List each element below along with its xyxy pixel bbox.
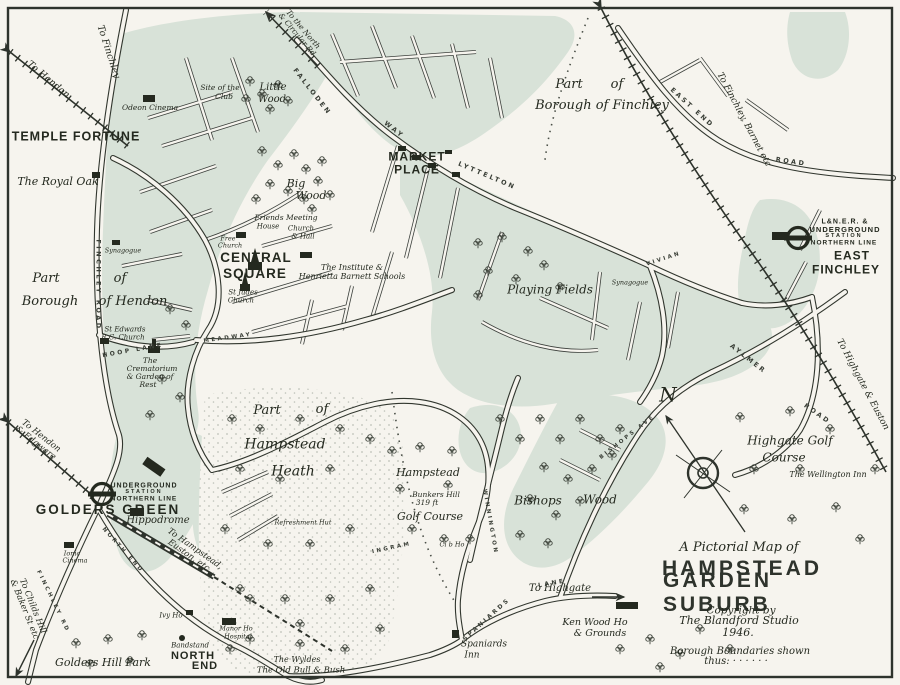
label-hendon-borough: Borough: [22, 295, 79, 309]
title-legend-2: thus: · · · · · ·: [704, 657, 768, 668]
road-finchley-road: FINCHLEY ROAD: [95, 239, 102, 330]
label-bishops-wood-2: Wood: [583, 494, 617, 507]
label-highgate-golf-1: Highgate Golf: [747, 435, 832, 448]
label-heath-part: Part: [253, 404, 280, 418]
label-little-wood-1: Little: [260, 83, 287, 94]
label-ef-name-1: EAST: [834, 250, 870, 263]
label-big-wood-2: Wood: [296, 190, 327, 202]
label-finchley-of: of: [611, 78, 624, 92]
label-odeon-cinema: Odeon Cinema: [122, 104, 178, 112]
title-copyright-2: The Blandford Studio: [679, 615, 798, 627]
label-hippodrome: Hippodrome: [126, 516, 189, 527]
label-bishops-wood-1: Bishops: [514, 495, 562, 508]
label-little-wood-2: Wood: [258, 95, 286, 106]
label-heath-hampstead: Hampstead: [244, 438, 325, 453]
label-spaniards-2: Inn: [464, 651, 479, 660]
label-heath-of: of: [316, 403, 329, 417]
title-copyright-3: 1946.: [722, 627, 754, 639]
label-market-place-2: PLACE: [394, 164, 440, 177]
label-central-square-2: SQUARE: [223, 267, 287, 281]
label-wyldes: The Wyldes: [274, 656, 321, 664]
label-club-house: Cl b Ho: [440, 542, 465, 549]
label-central-square-1: CENTRAL: [220, 251, 292, 265]
label-old-bull-bush: The Old Bull & Bush: [257, 667, 345, 676]
label-friends-meeting-2: House: [257, 223, 280, 230]
compass-n-label: N: [659, 385, 677, 406]
label-hendon-part: Part: [32, 272, 59, 286]
label-hendon-of: of: [114, 272, 127, 286]
label-hampstead-golf-4: Golf Course: [397, 511, 463, 523]
label-big-wood-1: Big: [287, 178, 306, 190]
label-ef-name-2: FINCHLEY: [812, 264, 880, 277]
label-institute-2: Henrietta Barnett Schools: [299, 273, 405, 281]
label-synagogue-east: Synagogue: [612, 280, 648, 287]
label-st-judes-2: Church: [228, 297, 254, 304]
pictorial-map-hampstead-garden-suburb: TEMPLE FORTUNE MARKET PLACE CENTRAL SQUA…: [0, 0, 900, 685]
label-friends-meeting-1: Friends Meeting: [254, 214, 317, 222]
label-golders-hill-park: Golders Hill Park: [55, 657, 151, 669]
label-wellington-inn: The Wellington Inn: [789, 471, 866, 479]
label-market-place-1: MARKET: [388, 151, 445, 164]
label-ken-wood-1: Ken Wood Ho: [562, 618, 627, 628]
label-manor-2: Hospital: [224, 634, 252, 641]
label-manor-1: Manor Ho: [219, 626, 252, 633]
label-st-edwards-2: R.C. Church: [101, 334, 144, 341]
label-finchley-part: Part: [555, 78, 582, 92]
label-temple-fortune: TEMPLE FORTUNE: [12, 130, 141, 143]
label-site-of-club-1: Site of the: [200, 84, 239, 92]
label-heath-heath: Heath: [271, 465, 314, 480]
label-spaniards-1: Spaniards: [461, 640, 507, 649]
label-royal-oak: The Royal Oak: [17, 176, 98, 188]
label-ef-line: NORTHERN LINE: [811, 241, 877, 248]
label-bandstand: Bandstand: [171, 642, 209, 649]
label-free-church-2: Church: [218, 243, 242, 250]
label-refreshment-hut: Refreshment Hut: [275, 520, 332, 527]
label-hendon-of-hendon: of Hendon: [99, 295, 168, 309]
label-ionic-2: Cinema: [62, 558, 87, 565]
label-highgate-golf-2: Course: [762, 452, 805, 465]
label-crematorium-4: Rest: [140, 381, 157, 389]
label-finchley-borough: Borough of Finchley: [535, 99, 669, 113]
label-site-of-club-2: Club: [215, 93, 233, 101]
label-synagogue-west: Synagogue: [105, 248, 141, 255]
label-hampstead-golf-3: 319 ft: [416, 499, 439, 507]
label-playing-fields: Playing Fields: [507, 284, 593, 297]
label-church-hall-2: & Hall: [291, 233, 314, 240]
label-ken-wood-2: & Grounds: [574, 629, 627, 639]
title-pretitle: A Pictorial Map of: [679, 541, 798, 555]
label-ivy-house: Ivy Ho: [159, 612, 182, 619]
label-hampstead-golf-1: Hampstead: [396, 467, 460, 479]
label-north-end-2: END: [192, 661, 218, 673]
